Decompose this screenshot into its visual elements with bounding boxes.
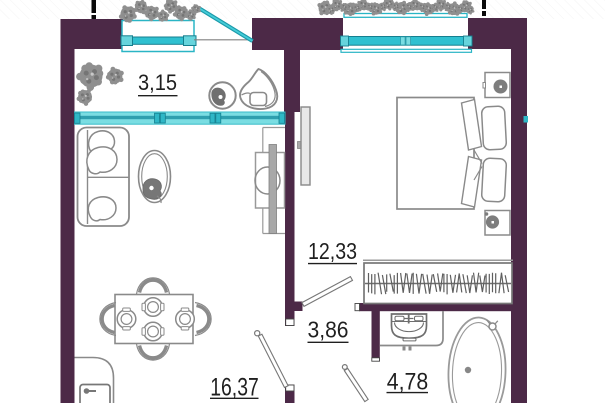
svg-text:16,37: 16,37 <box>210 374 259 402</box>
svg-text:12,33: 12,33 <box>308 238 357 264</box>
svg-text:4,78: 4,78 <box>387 369 429 396</box>
svg-text:3,15: 3,15 <box>138 70 177 95</box>
svg-text:3,86: 3,86 <box>308 317 349 343</box>
